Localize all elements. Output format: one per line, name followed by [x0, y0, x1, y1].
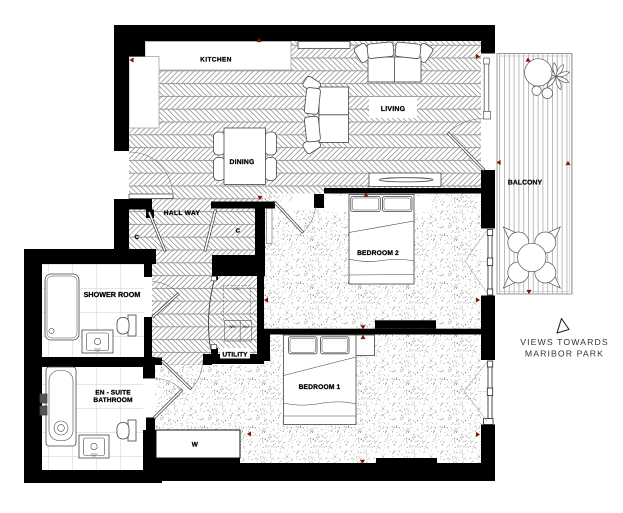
svg-text:WM: WM — [229, 325, 236, 329]
svg-text:C: C — [135, 234, 140, 241]
svg-text:BEDROOM 1: BEDROOM 1 — [299, 384, 341, 391]
svg-text:LIVING: LIVING — [381, 106, 406, 113]
svg-text:KITCHEN: KITCHEN — [200, 57, 232, 64]
svg-text:W: W — [192, 442, 199, 449]
svg-text:UTILITY: UTILITY — [222, 352, 248, 359]
svg-text:BALCONY: BALCONY — [508, 180, 543, 187]
svg-text:HIU: HIU — [243, 325, 249, 329]
svg-text:C: C — [236, 228, 241, 235]
svg-text:EN - SUITE: EN - SUITE — [95, 390, 131, 397]
svg-text:MARIBOR PARK: MARIBOR PARK — [525, 349, 604, 359]
svg-text:SHOWER ROOM: SHOWER ROOM — [84, 290, 141, 299]
svg-text:W&D: W&D — [233, 287, 241, 291]
svg-text:VIEWS TOWARDS: VIEWS TOWARDS — [520, 337, 608, 347]
svg-text:DINING: DINING — [230, 159, 255, 166]
svg-text:BEDROOM 2: BEDROOM 2 — [357, 250, 399, 257]
svg-text:HALL WAY: HALL WAY — [164, 210, 201, 217]
svg-text:BATHROOM: BATHROOM — [93, 397, 133, 404]
